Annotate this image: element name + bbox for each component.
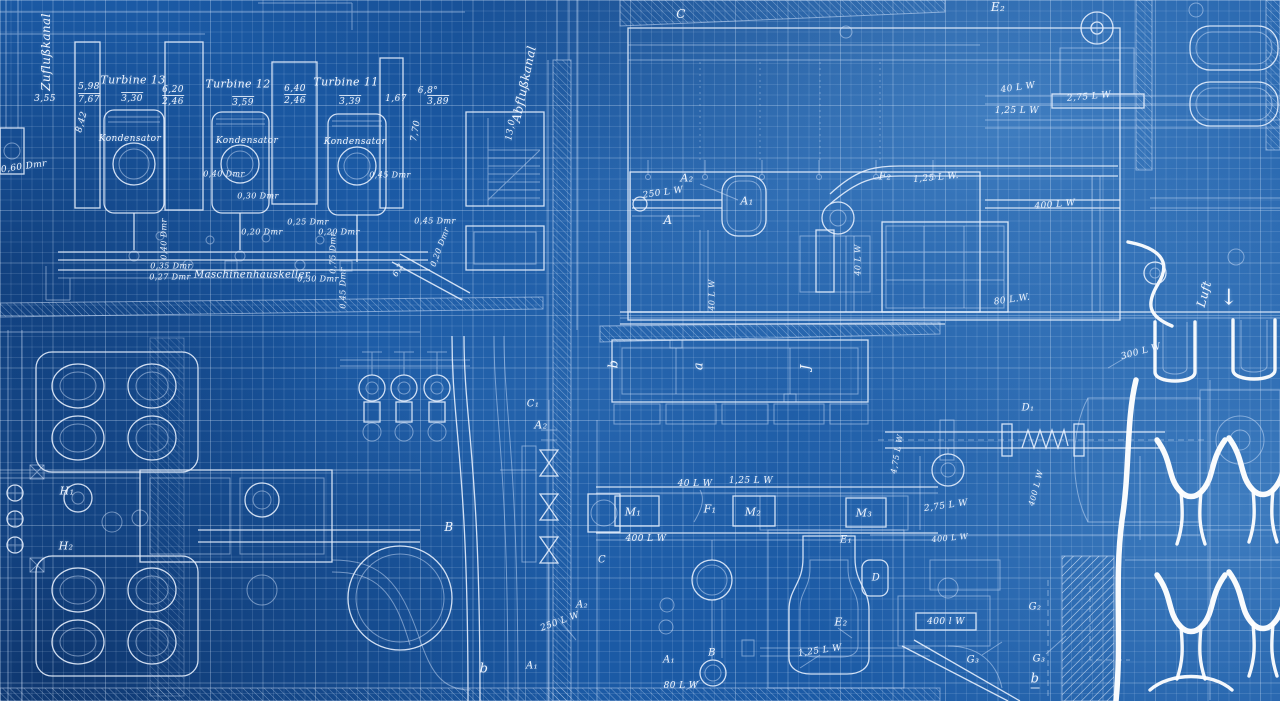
annotation-label: 40 L W: [708, 279, 717, 310]
annotation-label: F₂: [879, 170, 892, 183]
annotation-label: Kondensator: [216, 136, 278, 146]
annotation-label: 80 L.W.: [993, 293, 1031, 308]
annotation-label: G₃: [967, 655, 980, 666]
annotation-label: 1,67: [385, 94, 407, 104]
annotation-label: 8,42: [74, 110, 89, 133]
annotation-label: M₃: [856, 507, 872, 520]
annotation-label: G₂: [1029, 602, 1042, 613]
annotation-label: A: [663, 213, 672, 227]
annotation-label: 250 L W: [539, 610, 581, 633]
annotation-label: b: [1031, 672, 1040, 689]
blueprint-sheet: ZuflußkanalAbflußkanal3,555,987,678,42Tu…: [0, 0, 1280, 701]
annotation-label: H₂: [59, 540, 74, 553]
annotation-label: E₂: [991, 0, 1005, 14]
annotation-label: 250 L W: [642, 185, 684, 201]
annotation-label: M₂: [745, 506, 761, 519]
annotation-label: 3,59: [232, 96, 254, 108]
annotation-label: 6,2: [391, 262, 406, 279]
annotation-label: A₂: [576, 600, 588, 611]
annotation-label: E₁: [840, 535, 852, 546]
annotation-label: A₂: [534, 419, 547, 432]
annotation-label: Turbine 11: [313, 76, 378, 89]
airflow-arrow-icon: ↓: [1220, 286, 1239, 311]
annotation-label: Kondensator: [99, 134, 161, 144]
annotation-label: 2,46: [284, 94, 306, 106]
annotation-label: H₁: [60, 485, 75, 498]
annotation-label: 3,89: [427, 95, 449, 107]
annotation-label: 2,75 L W: [1067, 90, 1112, 104]
annotation-label: 300 L W: [1120, 342, 1162, 362]
annotation-label: Luft: [1194, 279, 1214, 308]
annotation-label: 0,25 Dmr: [287, 218, 328, 227]
annotation-label: 3,30: [121, 92, 143, 104]
annotation-label: 0,60 Dmr: [0, 159, 47, 175]
annotation-label: 0,20 Dmr: [429, 226, 452, 268]
annotation-label: 7,67: [78, 93, 100, 105]
annotation-label: 40 L W: [854, 244, 863, 275]
annotation-label: 0,35 Dmr: [150, 262, 191, 271]
label-layer: ZuflußkanalAbflußkanal3,555,987,678,42Tu…: [0, 0, 1280, 701]
annotation-label: 4,75 L W: [889, 434, 905, 475]
annotation-label: Maschinenhauskeller: [194, 270, 310, 281]
annotation-label: 0,20 Dmr: [318, 228, 359, 237]
annotation-label: 0,30 Dmr: [297, 275, 338, 284]
annotation-label: 3,39: [339, 95, 361, 107]
annotation-label: 6,40: [284, 84, 306, 94]
annotation-label: J: [799, 364, 814, 370]
annotation-label: 0,27 Dmr: [149, 273, 190, 282]
annotation-label: 400 L W: [1027, 469, 1045, 507]
annotation-label: F₁: [704, 503, 717, 516]
annotation-label: B: [708, 648, 716, 659]
annotation-label: 0,45 Dmr: [339, 267, 348, 308]
annotation-label: 6,20: [162, 85, 184, 95]
annotation-label: 3,55: [34, 94, 56, 104]
annotation-label: 0,45 Dmr: [369, 171, 410, 180]
annotation-label: 1,25 L W: [797, 643, 842, 659]
annotation-label: 1,25 L W: [729, 476, 773, 486]
annotation-label: A₂: [680, 172, 693, 185]
annotation-label: G₃: [1033, 654, 1046, 665]
annotation-label: A₁: [663, 655, 675, 666]
annotation-label: Turbine 13: [100, 74, 165, 87]
annotation-label: 0,45 Dmr: [414, 217, 455, 226]
annotation-label: 400 L W: [931, 532, 968, 544]
annotation-label: 400 l W: [927, 617, 965, 627]
annotation-label: b: [480, 662, 489, 677]
annotation-label: 2,75 L W: [923, 498, 968, 514]
annotation-label: a: [692, 362, 707, 370]
annotation-label: 40 L W: [678, 479, 713, 489]
annotation-label: 0,40 Dmr: [160, 218, 169, 259]
annotation-label: 0,75 Dmr: [329, 232, 338, 273]
annotation-label: 7,70: [409, 119, 423, 142]
annotation-label: D₁: [1022, 403, 1035, 414]
annotation-label: Abflußkanal: [509, 44, 539, 123]
annotation-label: 40 L W: [1000, 81, 1036, 96]
annotation-label: C: [676, 7, 686, 21]
annotation-label: Turbine 12: [205, 78, 270, 91]
annotation-label: E₂: [834, 616, 847, 629]
annotation-label: D: [872, 573, 880, 584]
annotation-label: 2,46: [162, 95, 184, 107]
annotation-label: 80 L W: [664, 681, 699, 691]
annotation-label: C: [598, 555, 606, 566]
annotation-label: Kondensator: [324, 137, 386, 147]
annotation-label: C₁: [527, 399, 539, 410]
annotation-label: 400 L W: [626, 534, 667, 544]
annotation-label: 5,98: [78, 82, 100, 92]
annotation-label: 1,25 L W.: [913, 171, 960, 185]
annotation-label: 1,25 L W: [995, 106, 1039, 116]
annotation-label: 0,30 Dmr: [237, 192, 278, 201]
annotation-label: M₁: [625, 506, 641, 519]
annotation-label: 13,0: [504, 118, 518, 141]
annotation-label: 0,20 Dmr: [241, 228, 282, 237]
annotation-label: A₁: [740, 195, 753, 208]
annotation-label: 400 L W: [1034, 198, 1076, 212]
annotation-label: A₁: [526, 661, 538, 672]
annotation-label: B: [444, 520, 453, 534]
annotation-label: Zuflußkanal: [39, 13, 53, 91]
annotation-label: b: [607, 360, 622, 369]
annotation-label: 0,40 Dmr: [203, 170, 244, 179]
